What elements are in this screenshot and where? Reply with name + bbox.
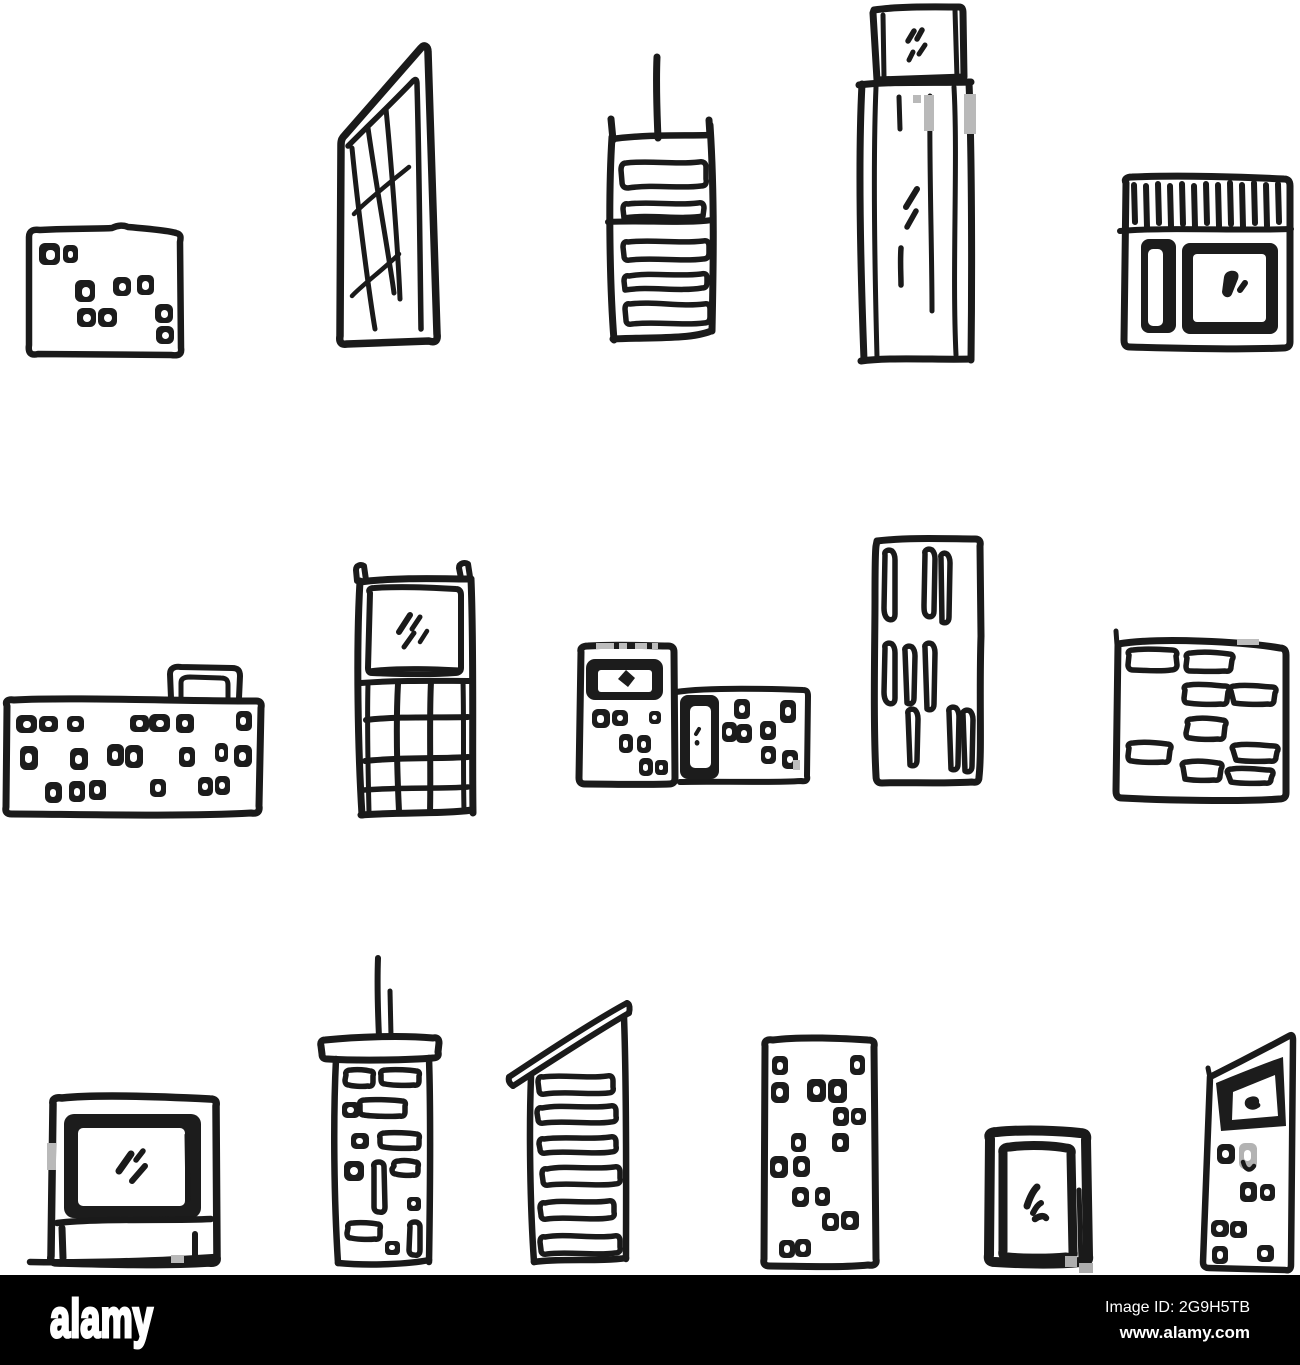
svg-text:www.alamy.com: www.alamy.com: [1119, 1323, 1250, 1342]
svg-text:Image ID: 2G9H5TB: Image ID: 2G9H5TB: [1105, 1299, 1250, 1316]
svg-text:alamy: alamy: [50, 1289, 153, 1349]
